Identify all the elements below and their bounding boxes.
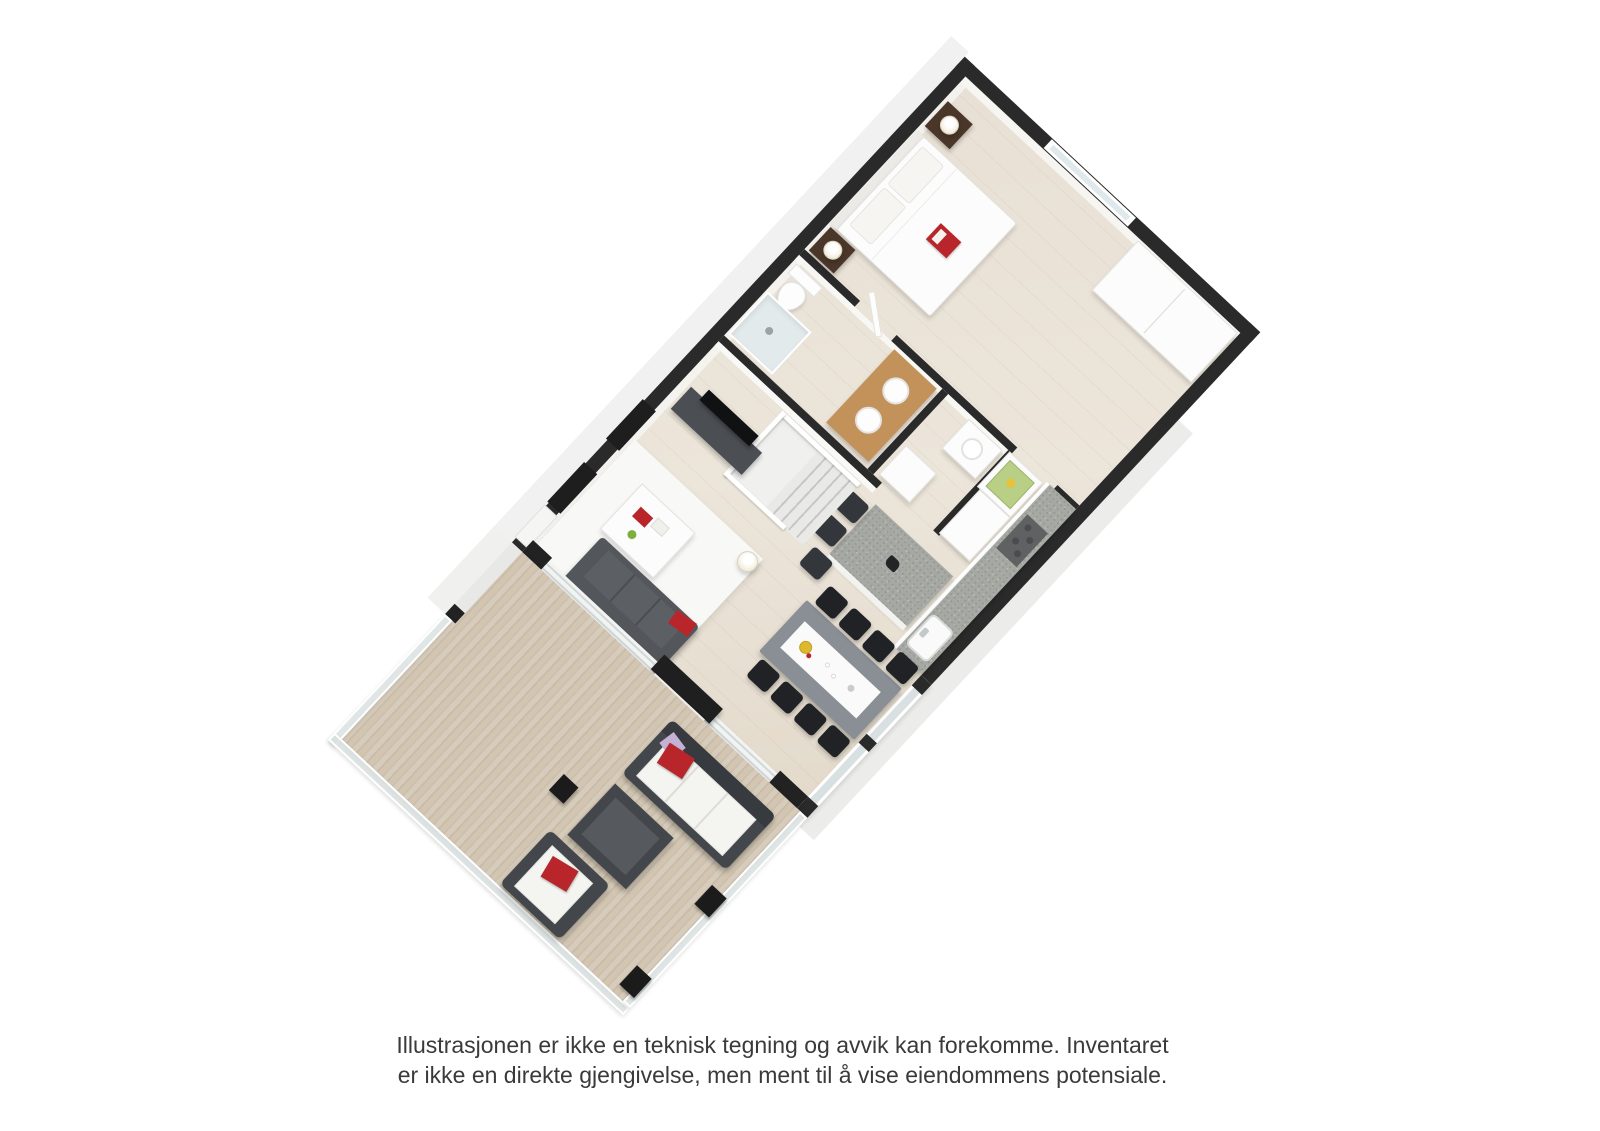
disclaimer-caption: Illustrasjonen er ikke en teknisk tegnin…: [0, 1030, 1565, 1090]
floor-plan: [328, 57, 1260, 1016]
disclaimer-line-2: er ikke en direkte gjengivelse, men ment…: [0, 1060, 1565, 1090]
disclaimer-line-1: Illustrasjonen er ikke en teknisk tegnin…: [0, 1030, 1565, 1060]
